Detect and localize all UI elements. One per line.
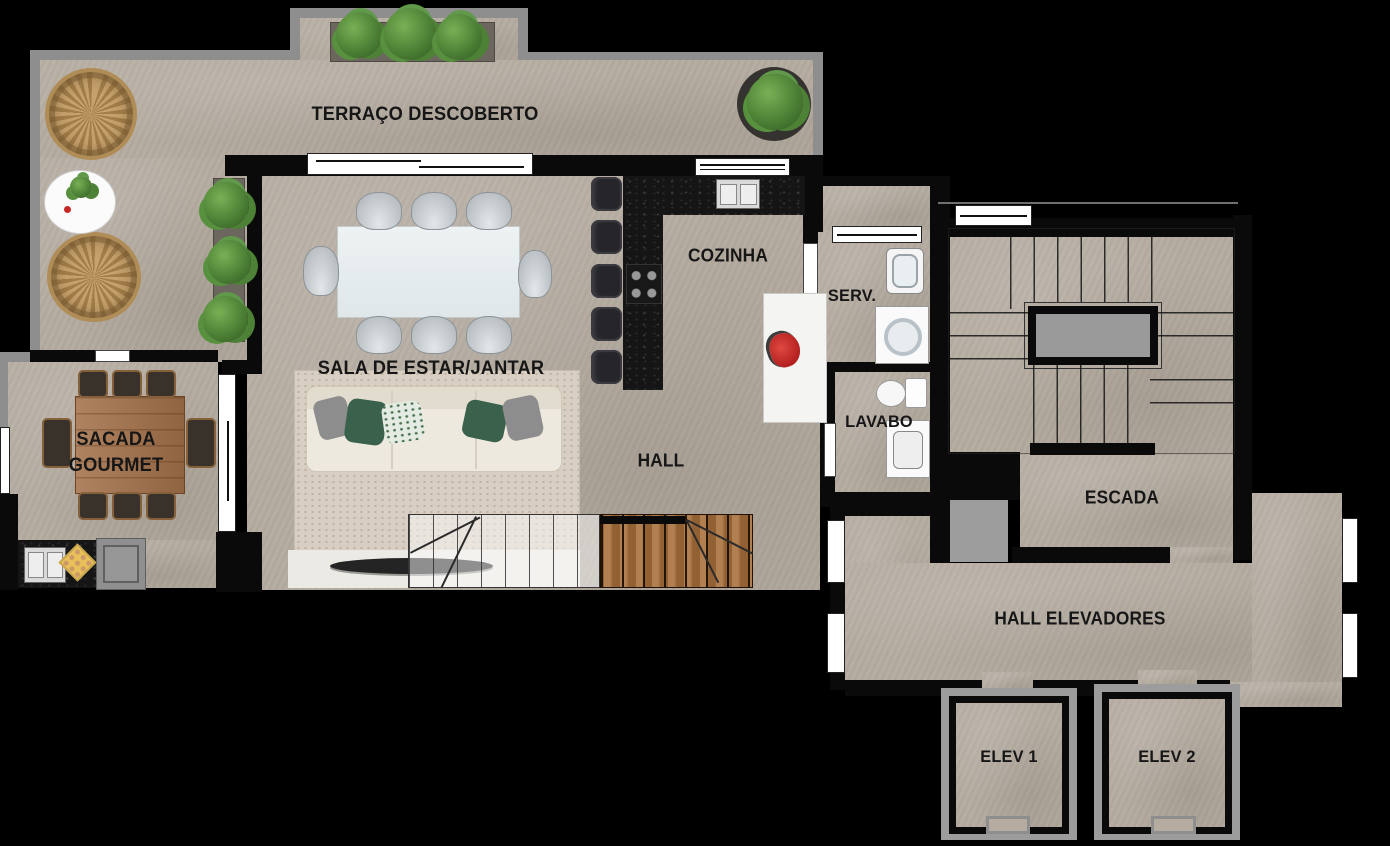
- label-hall-elevadores: HALL ELEVADORES: [994, 609, 1165, 630]
- label-serv: SERV.: [828, 286, 876, 306]
- sliding-door-panel: [316, 160, 421, 162]
- dining-chair: [466, 192, 512, 230]
- lavatory-door: [824, 423, 836, 477]
- pillow: [380, 399, 425, 444]
- sliding-door-panel: [419, 166, 524, 168]
- label-sala: SALA DE ESTAR/JANTAR: [318, 358, 544, 380]
- dining-chair: [466, 316, 512, 354]
- laundry-sink: [886, 248, 924, 294]
- plant: [436, 14, 482, 60]
- sink-basin: [740, 184, 757, 205]
- elevator-2-notch: [1151, 816, 1196, 834]
- dining-chair: [518, 250, 552, 298]
- stairwell-opening: [1170, 547, 1233, 563]
- plant: [336, 12, 382, 58]
- balcony-door: [218, 374, 236, 532]
- label-hall: HALL: [638, 451, 685, 472]
- service-closet-floor: [818, 184, 936, 230]
- gourmet-chair: [78, 370, 108, 398]
- gourmet-chair: [112, 370, 142, 398]
- dining-chair: [411, 192, 457, 230]
- terrace-outer-wall: [30, 50, 300, 60]
- plant: [202, 296, 248, 342]
- dining-table: [337, 226, 520, 318]
- stair-edge: [600, 516, 685, 524]
- dining-chair: [303, 246, 339, 296]
- table-accessory: [64, 206, 71, 213]
- bbq-sink: [24, 547, 66, 583]
- barbecue: [96, 538, 146, 590]
- elevator-1-notch: [986, 816, 1030, 834]
- plant: [747, 74, 803, 130]
- elevator-hall-floor: [1252, 493, 1342, 707]
- wall: [815, 176, 823, 232]
- cooktop: [626, 264, 662, 304]
- washing-machine: [875, 306, 929, 364]
- kitchen-sink: [716, 179, 760, 209]
- gourmet-chair: [42, 418, 72, 468]
- dining-chair: [356, 316, 402, 354]
- hall-door-frame: [827, 613, 845, 673]
- gourmet-chair: [186, 418, 216, 468]
- toilet-tank: [905, 378, 927, 408]
- window-mullion: [700, 169, 785, 171]
- stair-treads-right: [1158, 312, 1233, 339]
- service-window: [832, 226, 922, 243]
- balcony-outer-wall: [0, 362, 8, 430]
- door-leaf: [227, 421, 229, 501]
- kitchen-window: [695, 158, 790, 176]
- window-mullion: [960, 215, 1027, 217]
- balcony-window: [0, 427, 10, 494]
- wall: [815, 176, 938, 186]
- laundry-sink-basin: [892, 254, 918, 288]
- service-door: [803, 243, 818, 295]
- label-escada: ESCADA: [1085, 488, 1159, 509]
- dining-chair: [411, 316, 457, 354]
- wall: [0, 494, 18, 590]
- bar-stool: [591, 307, 622, 341]
- stair-treads-upper: [1010, 237, 1158, 309]
- gourmet-chair: [146, 492, 176, 520]
- plant: [384, 8, 436, 60]
- washer-drum: [884, 318, 922, 356]
- wall: [1012, 547, 1170, 563]
- stair-edge: [1030, 443, 1155, 455]
- sliding-door: [307, 153, 533, 175]
- hall-door-frame: [1342, 613, 1358, 678]
- window-mullion: [700, 164, 785, 166]
- sink-basin: [28, 552, 44, 578]
- dining-chair: [356, 192, 402, 230]
- elevator-hall-floor: [1225, 682, 1342, 707]
- label-cozinha: COZINHA: [688, 246, 768, 267]
- label-lavabo: LAVABO: [845, 412, 913, 432]
- bar-stool: [591, 220, 622, 254]
- gourmet-chair: [146, 370, 176, 398]
- hall-door-frame: [827, 520, 845, 583]
- sink-basin: [720, 184, 737, 205]
- terrace-outer-wall: [30, 50, 40, 362]
- label-sacada-line2: GOURMET: [69, 455, 164, 477]
- wall: [216, 532, 262, 592]
- label-elev1: ELEV 1: [980, 747, 1037, 767]
- hall-door-frame: [1342, 518, 1358, 583]
- terrace-opening: [95, 350, 130, 362]
- window-mullion: [837, 234, 917, 236]
- plant: [207, 240, 251, 284]
- terrace-outer-wall: [813, 52, 823, 162]
- stair-flight-glass: [408, 514, 600, 588]
- plant: [70, 176, 92, 198]
- barbecue-inner: [103, 545, 139, 583]
- wall: [935, 452, 1020, 500]
- bar-stool: [591, 177, 622, 211]
- label-elev2: ELEV 2: [1138, 747, 1195, 767]
- wall: [845, 507, 932, 516]
- gourmet-chair: [78, 492, 108, 520]
- bar-stool: [591, 264, 622, 298]
- stair-landing: [1028, 306, 1158, 365]
- label-terraco: TERRAÇO DESCOBERTO: [311, 104, 538, 126]
- sink-basin: [893, 431, 923, 469]
- stairwell-window: [955, 205, 1032, 226]
- wicker-chair: [45, 68, 137, 160]
- label-sacada-line1: SACADA: [76, 429, 155, 451]
- wicker-chair: [47, 232, 141, 322]
- stairwell-outer-line: [938, 202, 1238, 204]
- wall: [222, 360, 262, 374]
- stair-treads-left: [950, 312, 1028, 362]
- floor-plan: TERRAÇO DESCOBERTO COZINHA SERV. SALA DE…: [0, 0, 1390, 846]
- stair-treads-lower: [1033, 365, 1148, 443]
- balcony-outer-wall: [0, 352, 30, 362]
- bar-stool: [591, 350, 622, 384]
- stair-treads-right: [1150, 379, 1233, 407]
- wall: [1233, 215, 1252, 560]
- gourmet-chair: [112, 492, 142, 520]
- toilet-bowl: [876, 380, 906, 407]
- plant: [203, 182, 249, 228]
- stair-flight-wood: [600, 514, 753, 588]
